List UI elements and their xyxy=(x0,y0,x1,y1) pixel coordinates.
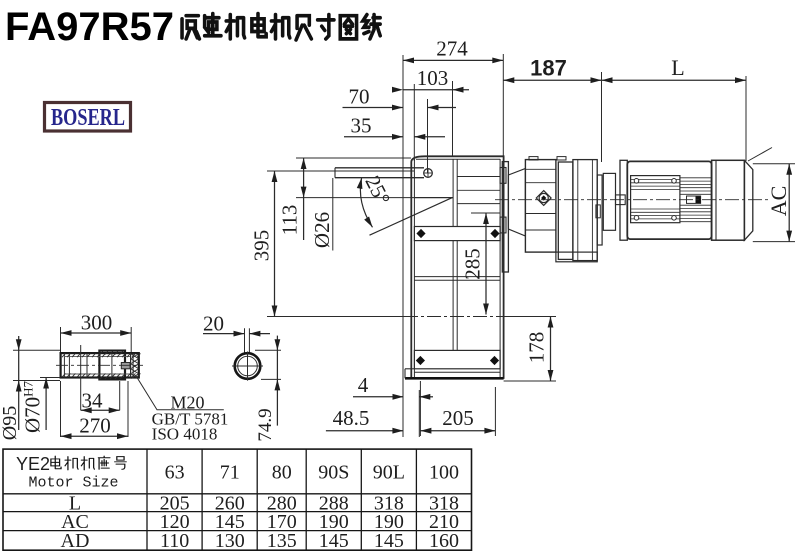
svg-text:274: 274 xyxy=(436,37,468,61)
svg-text:135: 135 xyxy=(267,530,297,552)
svg-text:113: 113 xyxy=(278,205,302,236)
svg-text:285: 285 xyxy=(461,248,485,280)
svg-text:Ø26: Ø26 xyxy=(310,212,334,248)
svg-text:FA97R57: FA97R57 xyxy=(5,5,174,49)
svg-text:145: 145 xyxy=(374,530,404,552)
svg-text:80: 80 xyxy=(272,462,292,484)
svg-text:395: 395 xyxy=(250,230,274,262)
svg-text:YE2: YE2 xyxy=(16,454,50,474)
svg-text:4: 4 xyxy=(358,373,369,397)
svg-text:300: 300 xyxy=(81,311,113,335)
svg-text:BOSERL: BOSERL xyxy=(51,105,125,131)
svg-text:63: 63 xyxy=(165,462,185,484)
svg-text:145: 145 xyxy=(319,530,349,552)
svg-text:103: 103 xyxy=(417,66,449,90)
svg-text:Ø95: Ø95 xyxy=(0,406,21,440)
svg-text:71: 71 xyxy=(220,462,240,484)
svg-text:35: 35 xyxy=(351,114,372,138)
svg-text:270: 270 xyxy=(79,414,111,438)
svg-text:160: 160 xyxy=(429,530,459,552)
svg-text:48.5: 48.5 xyxy=(333,406,370,430)
svg-text:Motor Size: Motor Size xyxy=(28,475,118,492)
svg-text:110: 110 xyxy=(160,530,189,552)
svg-text:90S: 90S xyxy=(318,462,349,484)
svg-text:205: 205 xyxy=(442,406,474,430)
svg-text:90L: 90L xyxy=(373,462,405,484)
svg-text:187: 187 xyxy=(530,56,567,81)
svg-text:74.9: 74.9 xyxy=(255,408,276,441)
svg-text:AD: AD xyxy=(61,530,90,552)
svg-text:130: 130 xyxy=(215,530,245,552)
svg-text:ISO 4018: ISO 4018 xyxy=(152,425,218,444)
svg-text:100: 100 xyxy=(429,462,459,484)
svg-text:AC: AC xyxy=(766,186,791,217)
svg-text:20: 20 xyxy=(203,312,224,336)
svg-text:L: L xyxy=(671,55,684,80)
svg-text:34: 34 xyxy=(82,389,104,413)
svg-text:178: 178 xyxy=(525,332,549,364)
svg-text:70: 70 xyxy=(349,85,370,109)
